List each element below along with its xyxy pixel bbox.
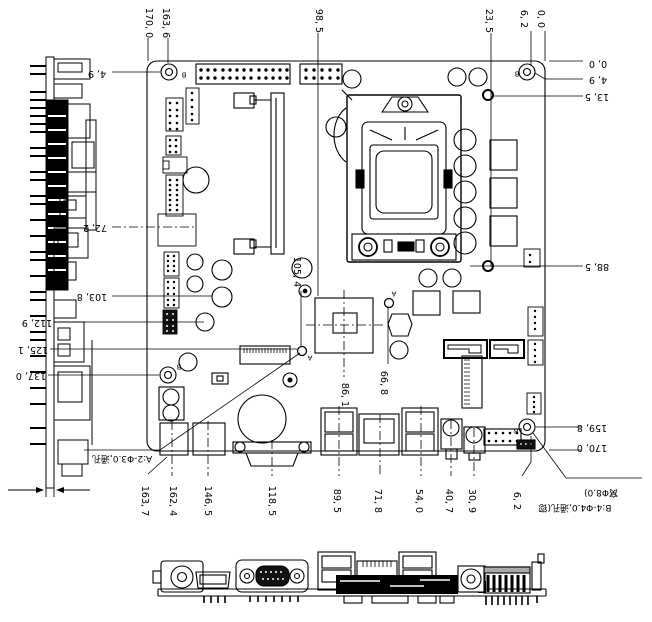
dimension-label: 105, 4 — [291, 257, 301, 287]
dim-arrow-right — [36, 487, 44, 493]
cpu-socket — [334, 90, 461, 262]
vga-rearview — [236, 560, 308, 592]
dimension-label: 112, 9 — [22, 317, 52, 327]
usb-stack2-topview — [402, 408, 438, 455]
annotation-text: A:2-Φ3.0,通孔 — [92, 453, 152, 463]
dimension-label: 163, 6 — [160, 8, 170, 38]
dimension-label: 13, 5 — [585, 91, 609, 101]
m2-ssd-slot — [462, 356, 482, 408]
dimension-label: 23, 5 — [483, 9, 493, 33]
dim-arrow-left — [56, 487, 64, 493]
drawing-canvas: 170, 0163, 698, 523, 56, 20, 04, 972, 21… — [0, 0, 652, 622]
dimension-label: 98, 5 — [313, 9, 323, 33]
mounting-hole-b3 — [160, 367, 176, 383]
right-edge-headers — [524, 249, 543, 414]
board-bottom-view — [153, 552, 546, 605]
dimension-label: 71, 8 — [372, 489, 382, 513]
dimension-label: 118, 5 — [266, 486, 276, 516]
dimension-label: 89, 5 — [331, 489, 341, 513]
socket-lever — [334, 108, 346, 162]
dimension-lines — [48, 31, 642, 478]
left-io-headers — [158, 88, 199, 334]
dense-linework-mass — [336, 575, 458, 594]
hole-marker: A — [308, 354, 313, 361]
socket-clip-left — [356, 170, 364, 188]
dc-jack-topview — [160, 423, 188, 455]
dimension-label: 6, 2 — [511, 492, 521, 510]
side-view — [8, 57, 96, 497]
drawing-linework — [0, 0, 652, 622]
sodimm-slot — [234, 93, 284, 254]
dimension-label: 170, 0 — [143, 8, 153, 38]
dimension-label: 88, 5 — [585, 261, 609, 271]
end-pin-rearview — [532, 554, 544, 590]
hole-marker: A — [392, 290, 397, 297]
hole-marker: B — [177, 363, 182, 370]
cooler-hole-top — [483, 90, 493, 100]
mounting-hole-a2 — [385, 299, 394, 308]
header-2x5-top — [300, 64, 342, 84]
dimension-label: 0, 0 — [589, 58, 607, 68]
dimension-label: 72, 2 — [83, 222, 107, 232]
sata-connectors — [444, 340, 524, 358]
audio-jack-rearview — [458, 566, 485, 592]
solder-point — [283, 373, 297, 387]
hole-marker: B — [515, 70, 520, 77]
mounting-hole-b2 — [519, 64, 535, 80]
side-pin-ticks — [30, 66, 46, 444]
hdmi-rearview — [196, 572, 230, 588]
header-2x13 — [196, 64, 290, 84]
coin-battery — [238, 395, 286, 443]
dimension-label: 159, 8 — [577, 422, 607, 432]
dimension-label: 137, 0 — [16, 370, 46, 380]
dimension-label: 40, 7 — [443, 489, 453, 513]
dimension-label: 163, 7 — [139, 486, 149, 516]
dimension-label: 4, 9 — [589, 74, 607, 84]
dimension-label: 103, 8 — [77, 291, 107, 301]
dimension-label: 86, 1 — [339, 383, 349, 407]
dimension-label: 54, 0 — [413, 489, 423, 513]
dimension-label: 125, 1 — [18, 344, 48, 354]
dimension-label: 4, 9 — [88, 68, 106, 78]
annotation-text: 窝Φ8.0) — [584, 487, 618, 497]
dimension-label: 0, 0 — [535, 10, 545, 28]
annotation-text: B:4-Φ4.0,通孔(锪 — [539, 502, 612, 512]
lan-topview — [359, 414, 399, 455]
hole-marker: B — [514, 427, 519, 434]
dc-jack-rearview — [153, 561, 203, 592]
dimension-label: 6, 2 — [518, 10, 528, 28]
dimension-label: 170, 0 — [577, 442, 607, 452]
dimension-label: 162, 4 — [167, 486, 177, 516]
capacitors-left — [179, 167, 232, 371]
dimension-label: 146, 5 — [202, 486, 212, 516]
through-hole-pins — [204, 596, 537, 605]
audio-jacks-topview — [441, 419, 485, 460]
dimension-label: 66, 8 — [378, 371, 388, 395]
socket-clip-right — [444, 170, 452, 188]
dimension-label: 30, 9 — [466, 489, 476, 513]
polymer-cap — [388, 314, 412, 336]
leader-annotation-a — [84, 353, 300, 450]
leader-annotation-b — [533, 433, 642, 478]
mounting-hole-b1 — [161, 64, 177, 80]
hole-marker: B — [182, 71, 187, 78]
small-smd-component — [212, 373, 228, 384]
hdmi-topview — [193, 423, 225, 455]
fan-header — [524, 249, 540, 267]
